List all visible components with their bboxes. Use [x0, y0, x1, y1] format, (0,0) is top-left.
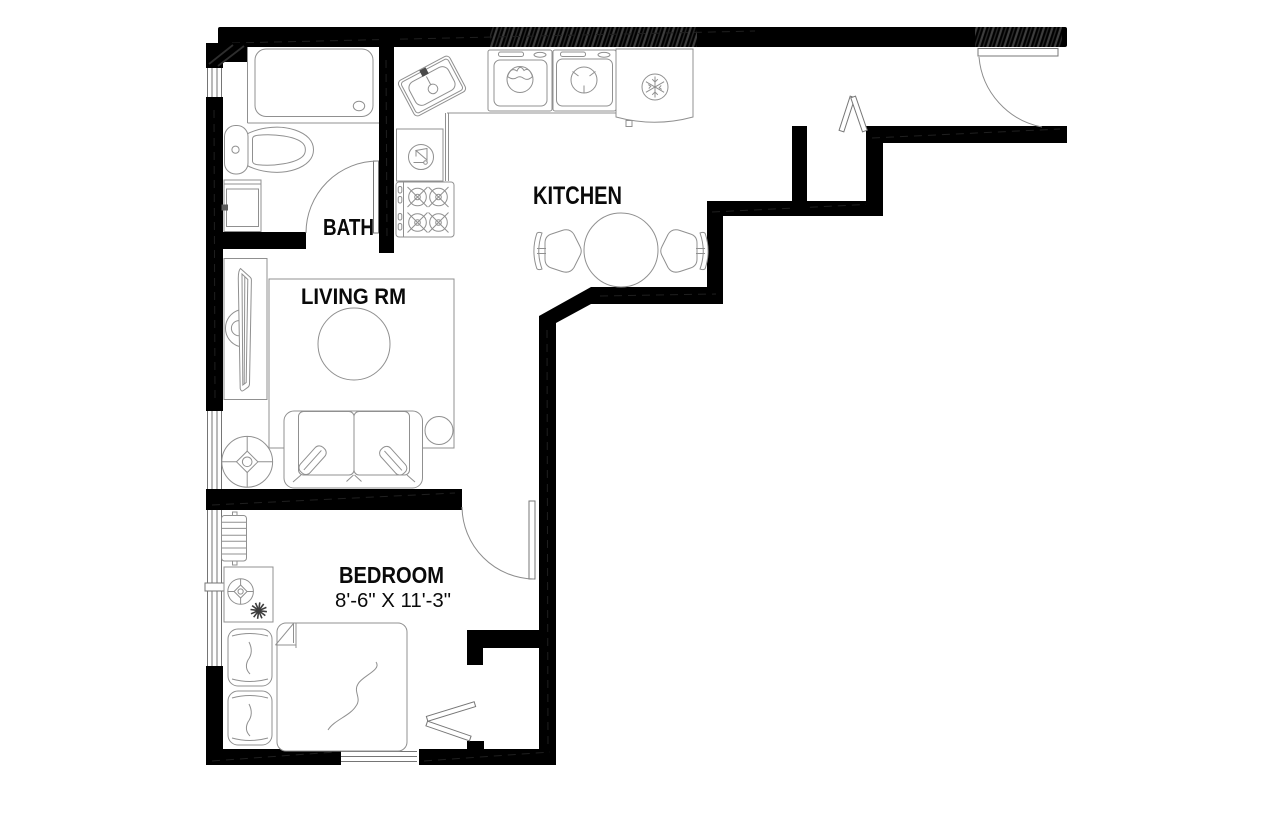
svg-text:BATH: BATH: [323, 214, 374, 240]
svg-text:BEDROOM: BEDROOM: [339, 562, 444, 588]
svg-text:LIVING RM: LIVING RM: [301, 284, 406, 309]
svg-text:8'-6" X 11'-3": 8'-6" X 11'-3": [335, 589, 451, 612]
svg-text:KITCHEN: KITCHEN: [533, 182, 622, 210]
